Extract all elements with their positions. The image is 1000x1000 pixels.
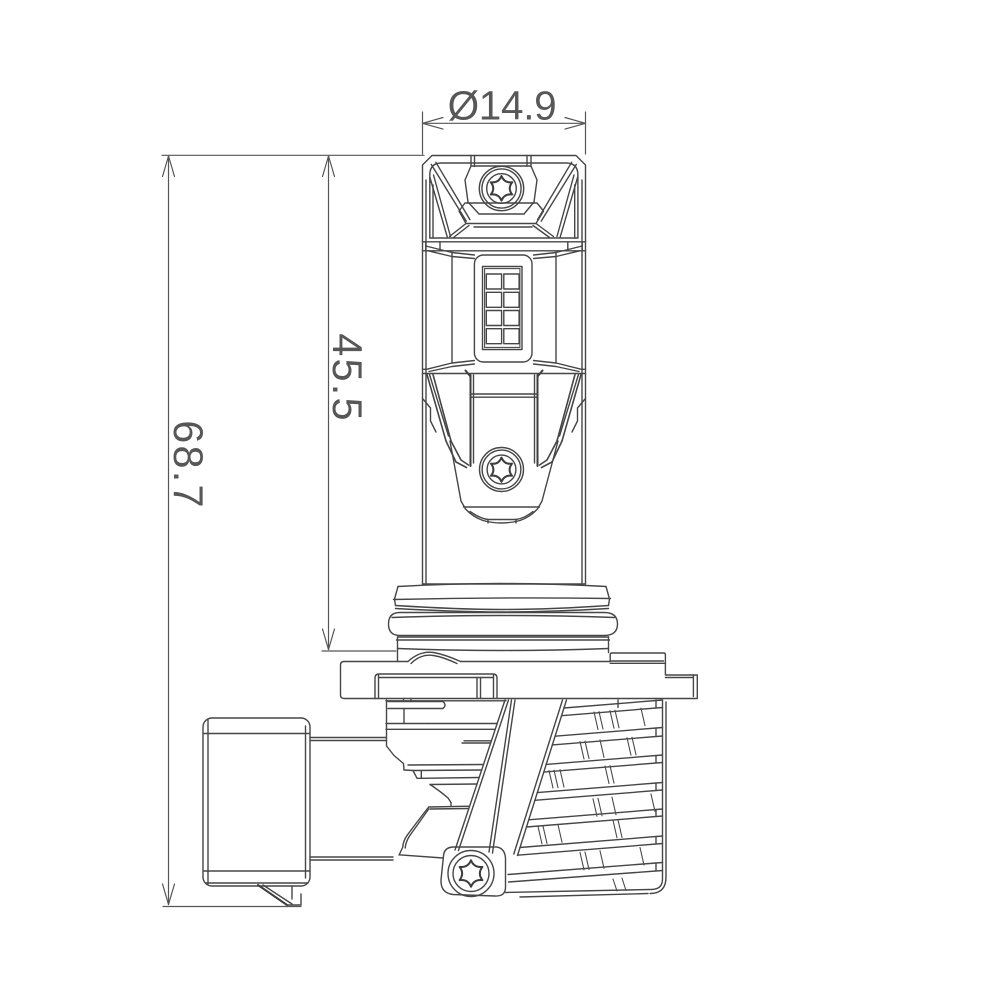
- svg-text:Ø14.9: Ø14.9: [448, 83, 557, 129]
- svg-text:45.5: 45.5: [324, 333, 371, 423]
- svg-text:68.7: 68.7: [165, 420, 212, 510]
